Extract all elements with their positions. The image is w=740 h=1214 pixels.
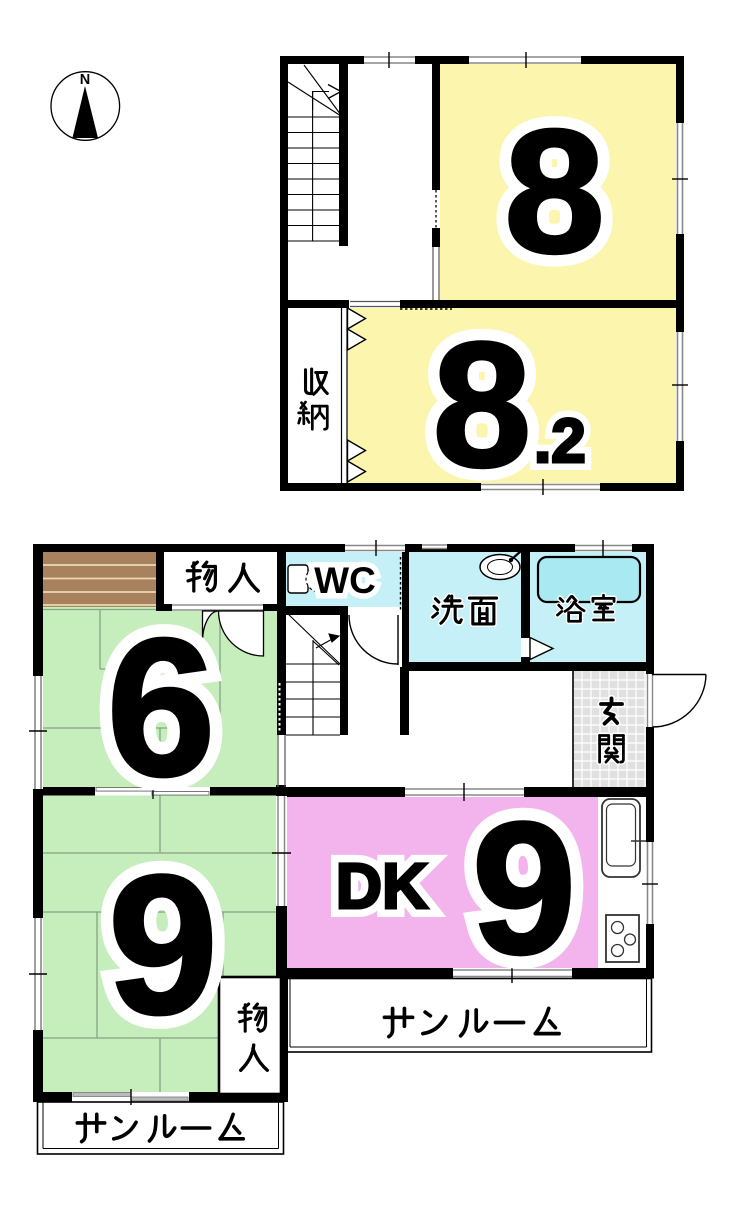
- svg-text:9: 9: [472, 783, 577, 993]
- svg-text:.2: .2: [534, 407, 586, 476]
- svg-text:DK: DK: [336, 850, 428, 922]
- svg-text:WC: WC: [314, 560, 376, 601]
- svg-text:9: 9: [108, 834, 218, 1055]
- svg-text:8: 8: [504, 92, 605, 289]
- svg-text:6: 6: [106, 598, 215, 817]
- svg-text:8: 8: [433, 305, 532, 504]
- svg-text:N: N: [80, 72, 90, 88]
